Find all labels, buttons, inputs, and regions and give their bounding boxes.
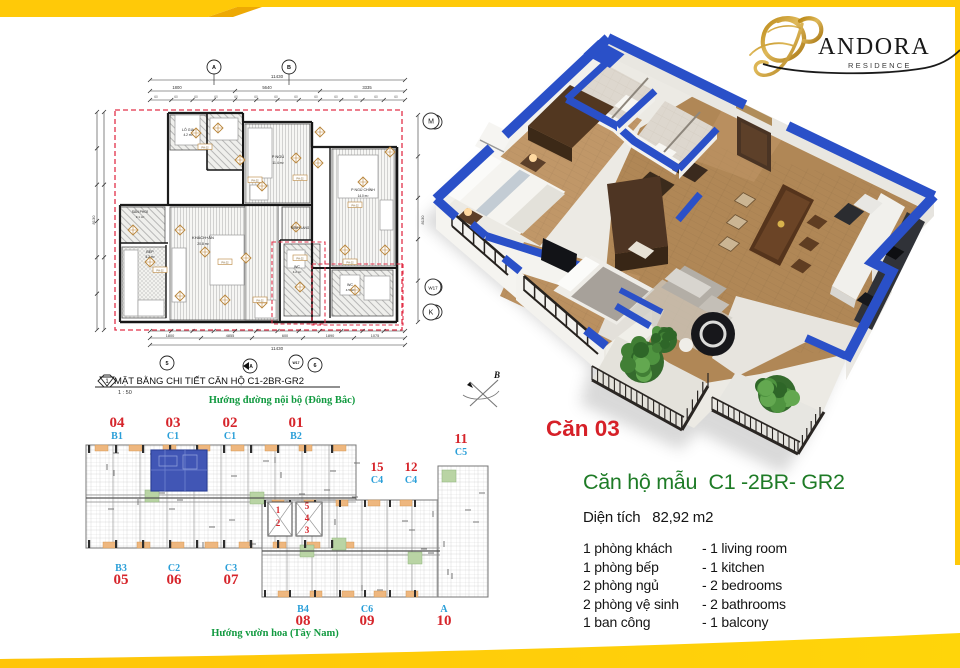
svg-text:5: 5 [305,501,310,511]
svg-text:PH.02: PH.02 [221,261,229,265]
svg-text:B: B [493,370,500,380]
svg-text:PH.02: PH.02 [346,261,354,265]
svg-text:WC: WC [347,283,353,287]
svg-text:P NGỦ CHÍNH: P NGỦ CHÍNH [351,187,375,192]
svg-text:4.2 m²: 4.2 m² [183,133,192,137]
svg-text:02: 02 [223,415,238,431]
svg-text:60: 60 [154,95,158,99]
svg-text:2: 2 [276,518,281,528]
svg-text:20.8 m²: 20.8 m² [197,242,209,246]
svg-text:ANDORA: ANDORA [818,34,930,60]
svg-text:07: 07 [224,572,240,588]
svg-text:5.2 m²: 5.2 m² [145,255,154,259]
svg-text:600: 600 [282,334,288,338]
svg-text:12: 12 [405,459,418,474]
svg-text:M: M [428,119,434,126]
svg-text:3.1 m²: 3.1 m² [136,215,145,219]
svg-text:8130: 8130 [91,215,96,225]
svg-text:4.5 m²: 4.5 m² [346,288,355,292]
svg-text:3335: 3335 [362,85,372,90]
svg-text:SÂN PHƠI: SÂN PHƠI [132,210,149,214]
svg-text:B: B [287,65,291,71]
svg-text:1800: 1800 [166,334,174,338]
svg-text:PH.02: PH.02 [201,146,209,150]
svg-text:PH.02: PH.02 [296,257,304,261]
svg-text:A: A [249,364,253,370]
svg-text:60: 60 [194,95,198,99]
svg-text:PH.02: PH.02 [251,179,259,183]
svg-text:C1: C1 [224,431,236,442]
svg-text:B1: B1 [111,431,123,442]
svg-text:5: 5 [165,361,168,367]
svg-text:P NGỦ: P NGỦ [272,154,285,159]
svg-text:4855: 4855 [226,334,234,338]
svg-text:06: 06 [167,572,183,588]
svg-text:11: 11 [454,432,467,447]
svg-text:60: 60 [314,95,318,99]
svg-text:60: 60 [334,95,338,99]
svg-text:60: 60 [394,95,398,99]
svg-text:60: 60 [174,95,178,99]
svg-text:PH.02: PH.02 [351,204,359,208]
svg-text:C4: C4 [405,475,417,486]
svg-text:08: 08 [296,613,311,629]
svg-text:60: 60 [214,95,218,99]
svg-text:W17: W17 [428,286,438,291]
svg-text:WC: WC [294,265,300,269]
svg-text:4.2 m²: 4.2 m² [293,270,302,274]
svg-text:3: 3 [305,525,310,535]
svg-text:10: 10 [437,613,452,629]
svg-text:60: 60 [234,95,238,99]
svg-text:RESIDENCE: RESIDENCE [848,61,912,70]
svg-text:RÃNH LANG: RÃNH LANG [291,225,310,230]
svg-text:LÔ GIA: LÔ GIA [182,127,195,132]
svg-text:11430: 11430 [271,346,284,351]
svg-text:1075: 1075 [371,334,379,338]
svg-text:60: 60 [294,95,298,99]
svg-text:14.0 m²: 14.0 m² [358,194,369,198]
svg-text:C5: C5 [455,447,467,458]
svg-text:5640: 5640 [262,85,272,90]
svg-text:B2: B2 [290,431,302,442]
svg-text:PH.02: PH.02 [156,269,164,273]
svg-text:60: 60 [374,95,378,99]
svg-text:MẶT BẰNG CHI TIẾT CĂN HỘ C1-2B: MẶT BẰNG CHI TIẾT CĂN HỘ C1-2BR-GR2 [114,376,304,387]
svg-text:60: 60 [254,95,258,99]
svg-text:KHÁCH+ĂN: KHÁCH+ĂN [192,235,214,240]
svg-text:W17: W17 [293,361,300,365]
svg-text:6: 6 [313,363,316,369]
svg-text:05: 05 [114,572,129,588]
svg-text:60: 60 [354,95,358,99]
svg-text:11430: 11430 [271,74,284,79]
svg-text:C4: C4 [371,475,383,486]
svg-text:4: 4 [305,513,310,523]
svg-text:15: 15 [371,459,385,474]
svg-text:K: K [429,310,434,317]
svg-text:60: 60 [274,95,278,99]
svg-text:PH.02: PH.02 [296,177,304,181]
svg-text:C1: C1 [167,431,179,442]
svg-text:09: 09 [360,613,375,629]
svg-text:1: 1 [276,505,281,515]
svg-text:PH.02: PH.02 [256,299,264,303]
svg-text:04: 04 [110,415,126,431]
svg-text:A: A [212,65,216,71]
svg-text:BẾP: BẾP [146,249,154,254]
svg-text:01: 01 [289,415,304,431]
svg-text:11.4 m²: 11.4 m² [272,161,284,165]
svg-text:1800: 1800 [172,85,182,90]
svg-text:1890: 1890 [326,334,334,338]
svg-text:03: 03 [166,415,181,431]
